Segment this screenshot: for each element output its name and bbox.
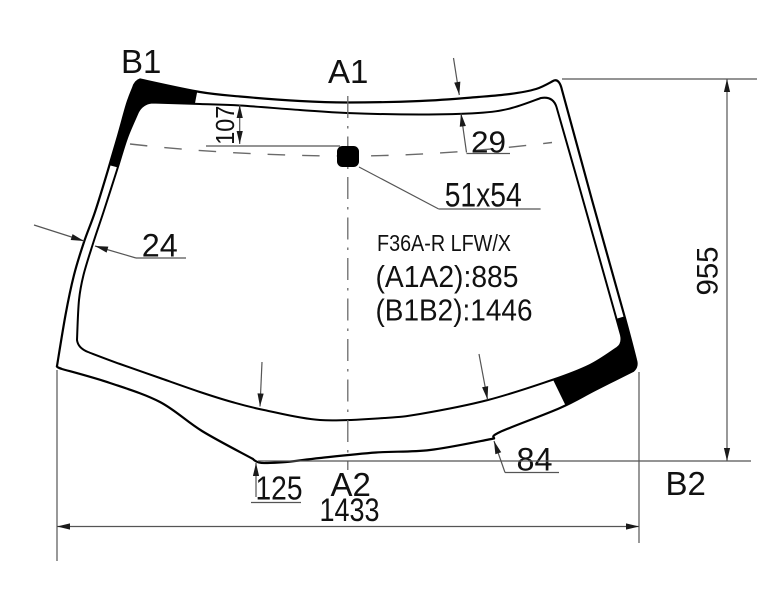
svg-text:125: 125	[256, 470, 303, 507]
svg-text:955: 955	[692, 247, 725, 296]
svg-text:51x54: 51x54	[445, 177, 522, 215]
svg-text:84: 84	[517, 442, 553, 478]
svg-text:A1: A1	[328, 53, 368, 90]
svg-text:107: 107	[210, 106, 240, 145]
svg-text:F36A-R LFW/X: F36A-R LFW/X	[377, 230, 511, 256]
svg-text:B1: B1	[121, 43, 161, 80]
svg-text:(A1A2):885: (A1A2):885	[376, 259, 519, 294]
svg-text:B2: B2	[666, 465, 706, 502]
svg-text:(B1B2):1446: (B1B2):1446	[376, 293, 533, 328]
svg-text:29: 29	[471, 125, 506, 160]
svg-text:24: 24	[142, 228, 178, 264]
svg-text:A2: A2	[331, 466, 371, 503]
